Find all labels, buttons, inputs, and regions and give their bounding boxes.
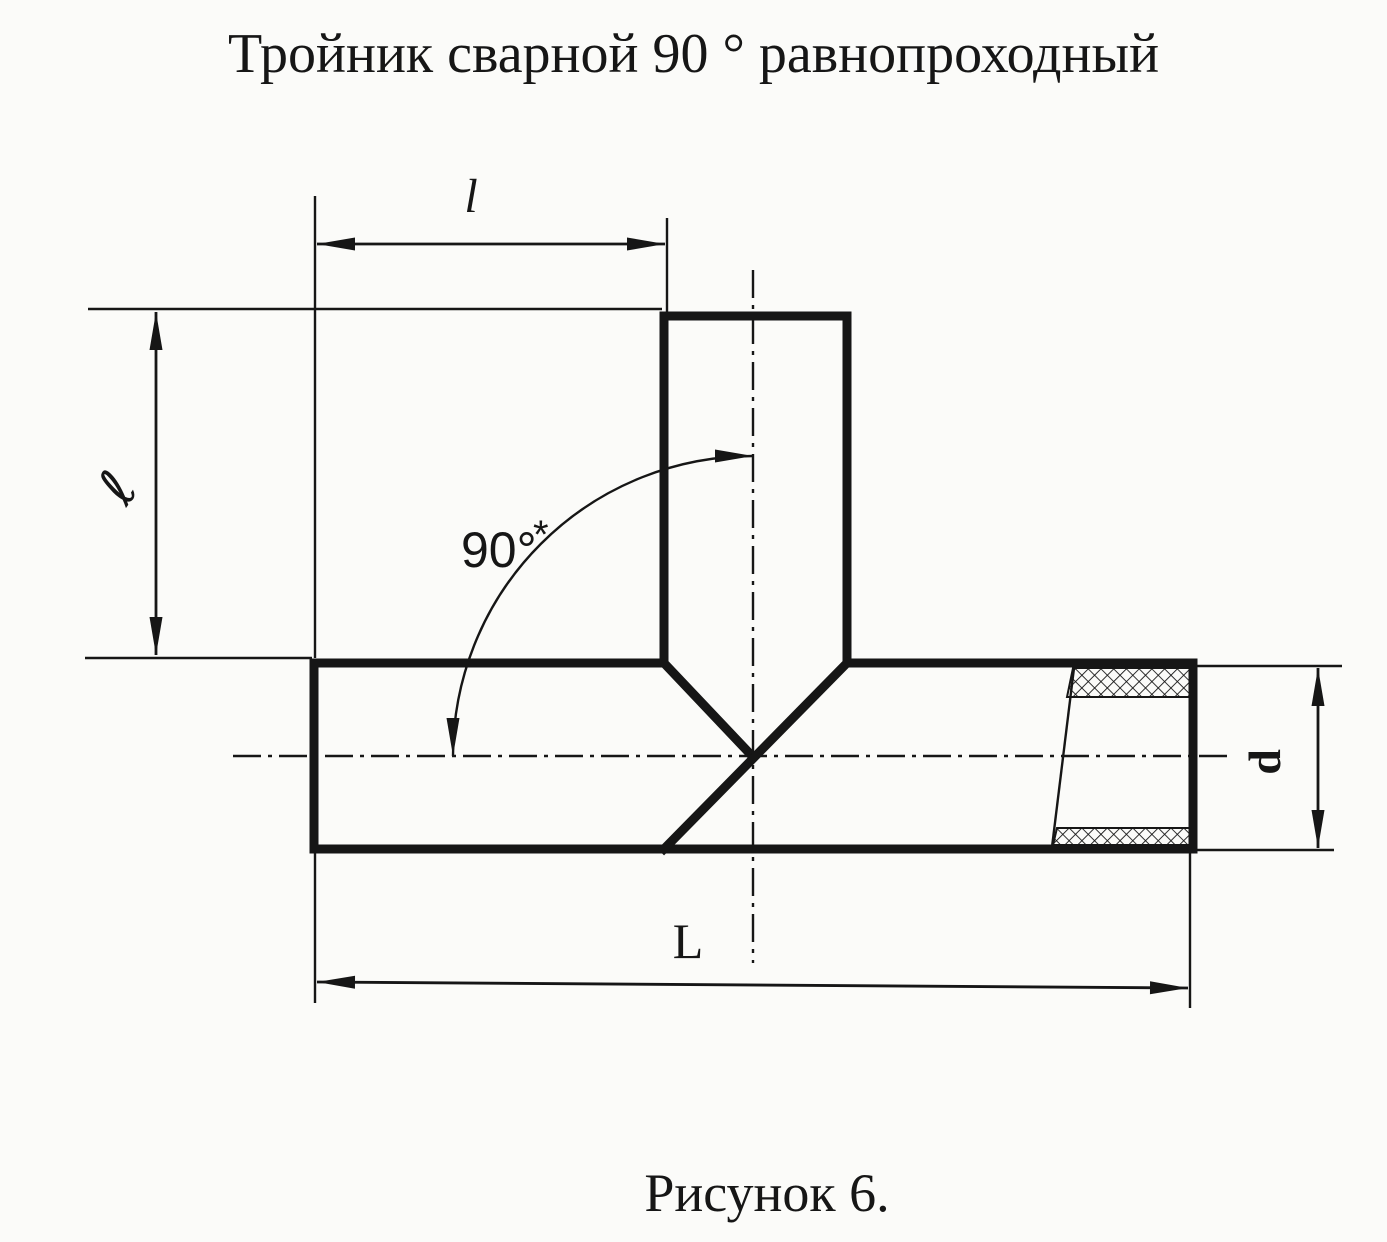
dimension-label-ell: ℓ <box>85 461 150 516</box>
dimension-line <box>317 982 1188 988</box>
dimension-diameter: d <box>1197 666 1342 850</box>
dimension-branch-offset: l <box>315 170 667 658</box>
angle-label: 90° <box>461 522 537 578</box>
wall-section-hatch-bottom <box>1053 828 1190 845</box>
scanned-page: Тройник сварной 90 ° равнопроходный <box>0 0 1387 1242</box>
dimension-label-L: L <box>673 913 704 969</box>
angle-note-star: * <box>533 513 549 557</box>
branch-pipe-outline <box>664 316 847 663</box>
weld-seam-left <box>664 663 753 757</box>
dimension-label-l: l <box>464 170 477 223</box>
tee-drawing-svg: l ℓ 90° * L d <box>0 0 1387 1242</box>
figure-caption: Рисунок 6. <box>644 1162 889 1224</box>
dimension-label-d: d <box>1239 749 1290 775</box>
section-break-line <box>1052 668 1074 847</box>
section-cut <box>1052 668 1190 847</box>
wall-section-hatch-top <box>1067 668 1190 697</box>
centerlines <box>233 270 1228 963</box>
dimension-branch-height: ℓ <box>85 309 662 658</box>
